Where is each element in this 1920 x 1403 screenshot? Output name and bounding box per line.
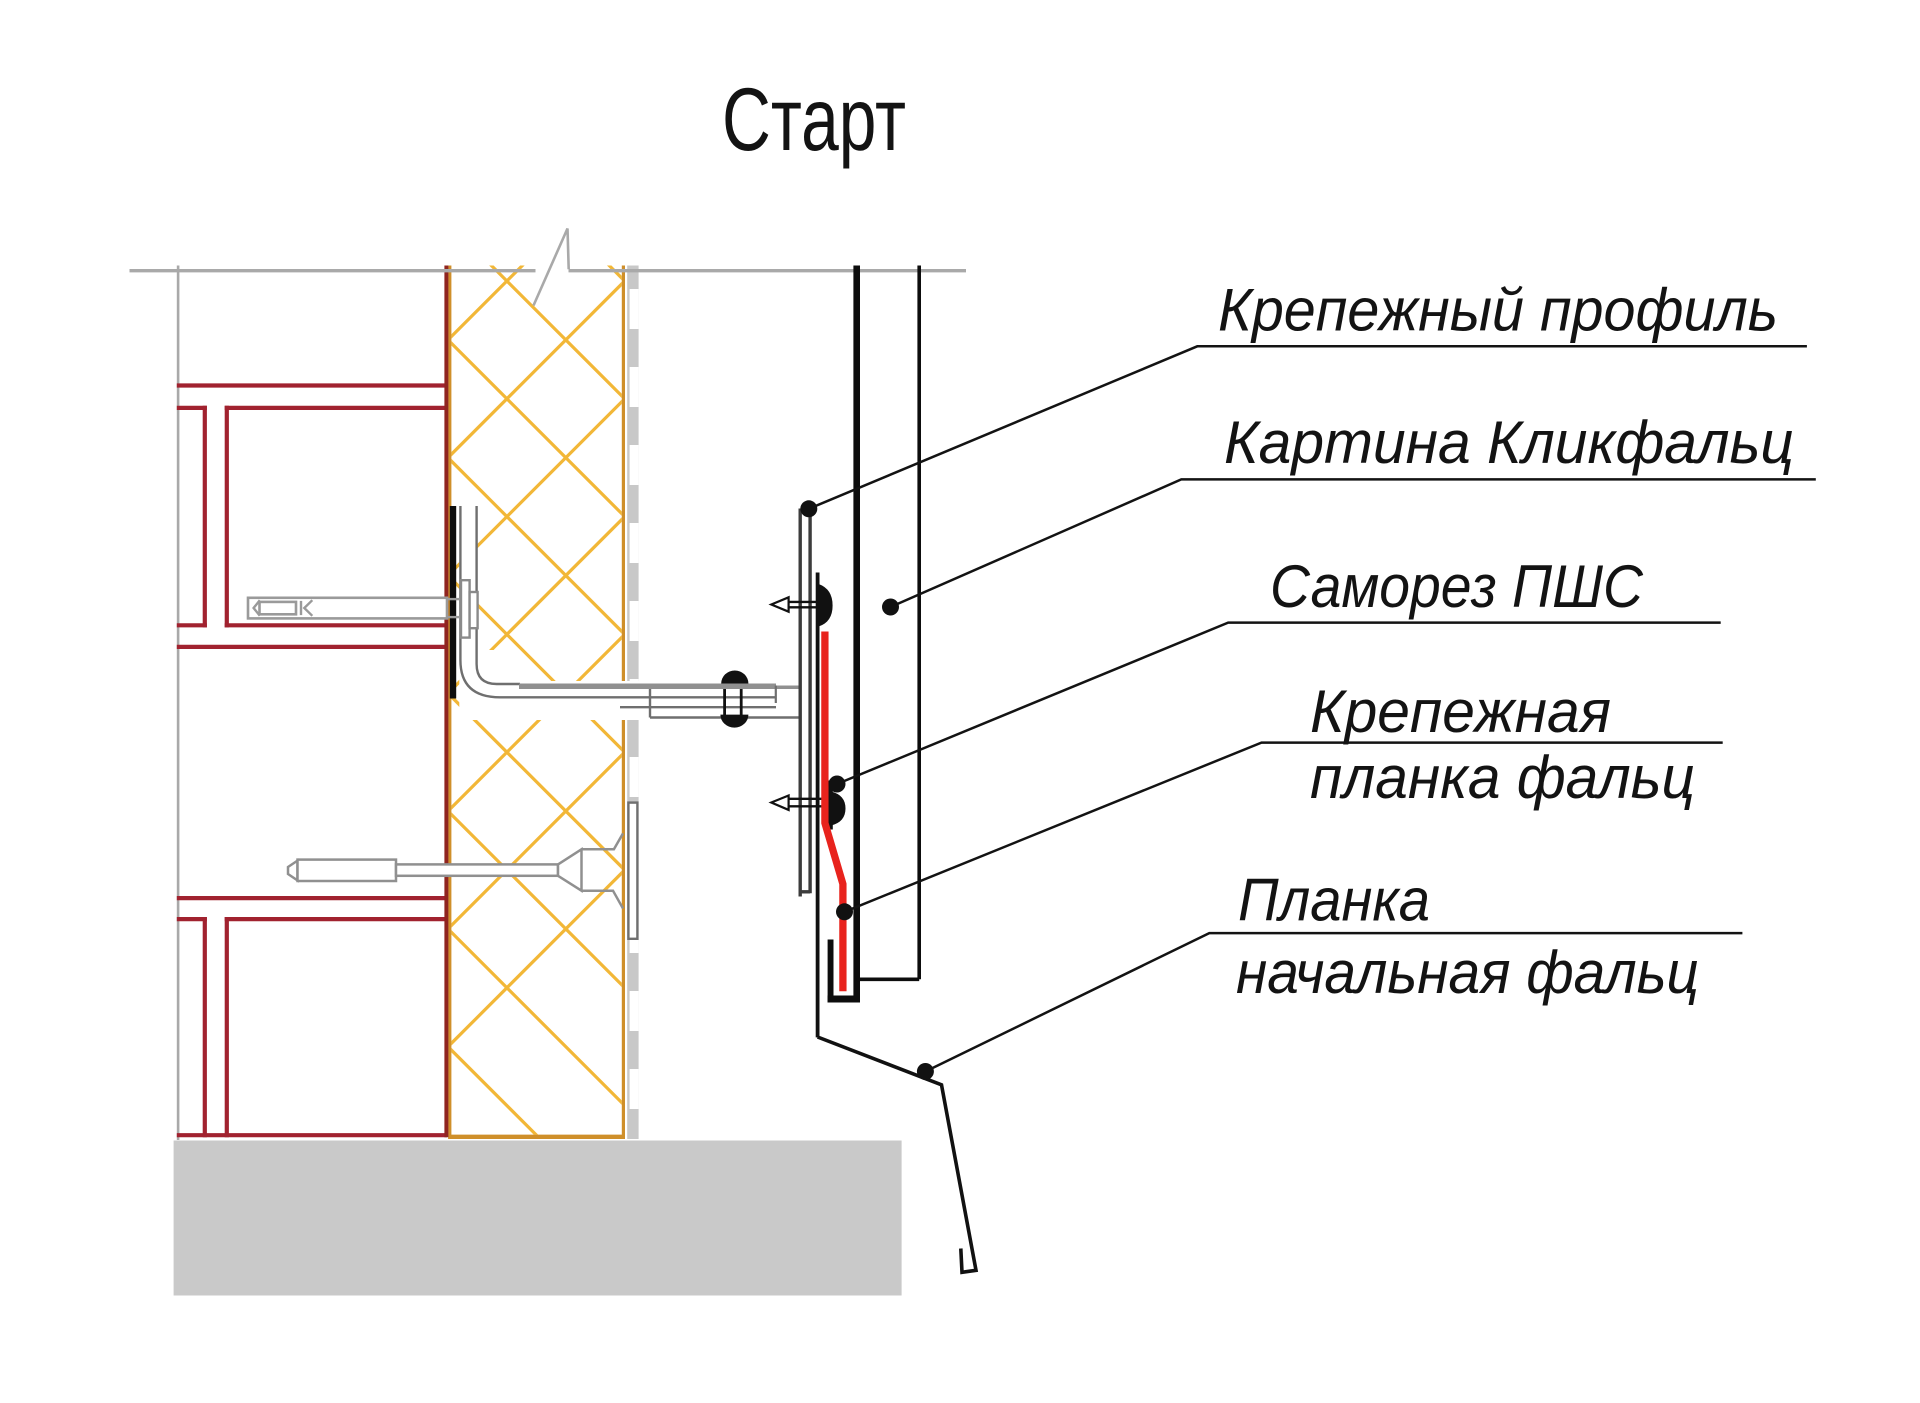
svg-text:Картина Кликфальц: Картина Кликфальц: [1224, 409, 1794, 476]
svg-text:начальная фальц: начальная фальц: [1236, 939, 1699, 1006]
svg-text:Саморез ПШС: Саморез ПШС: [1270, 553, 1644, 620]
svg-text:Планка: Планка: [1238, 867, 1430, 934]
svg-text:Крепежный профиль: Крепежный профиль: [1218, 277, 1778, 344]
svg-text:Старт: Старт: [722, 69, 906, 169]
svg-text:планка фальц: планка фальц: [1310, 744, 1695, 811]
svg-text:Крепежная: Крепежная: [1310, 678, 1611, 745]
